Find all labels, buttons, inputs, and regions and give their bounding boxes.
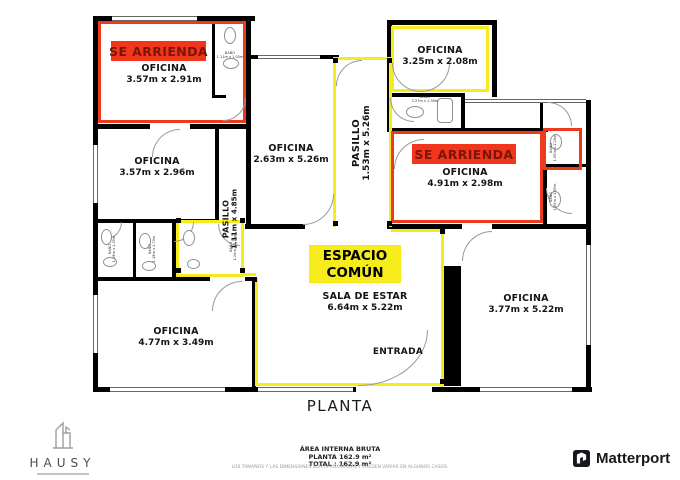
wall-segment [190,124,250,129]
bath-dims: 1.19m x 1.70m [152,229,156,269]
building-icon [46,420,80,450]
room-office-center: OFICINA 2.63m x 5.26m [248,143,334,165]
hausy-wordmark: HAUSY [10,456,115,470]
window-marker [258,55,320,59]
wall-segment [492,20,497,97]
bath-label: BAÑO 1.05m x 1.85m [549,177,559,217]
bath-dims: 1.11m x 1.05m [210,55,250,59]
bath-label: BAÑO 1.19m x 1.05m [108,229,118,269]
wall-marker [440,379,445,384]
matterport-icon [573,450,590,467]
hausy-tagline-bar [37,473,89,475]
entrance-door-arc [358,330,428,386]
room-name: OFICINA [98,156,216,167]
common-area-outline [441,229,444,387]
wall-column [444,266,461,386]
wall-segment [93,124,150,129]
banner-text-line2: COMÚN [309,265,401,282]
hausy-logo: HAUSY [10,420,115,475]
room-dims: 3.57m x 2.91m [104,75,224,85]
room-name: SALA DE ESTAR [298,291,432,302]
common-area-outline [391,229,444,232]
room-name: OFICINA [413,167,517,178]
room-dims: 3.25m x 2.08m [394,57,486,67]
sink-fixture [187,259,200,269]
door-arc [462,231,492,261]
bath-dims: 1.05m x 1.26m [553,128,557,168]
entrance-label: ENTRADA [362,347,434,357]
room-dims: 3.57m x 2.96m [98,168,216,178]
wall-segment [133,219,136,280]
banner-se-arrienda-1: SE ARRIENDA [111,41,206,61]
wall-segment [93,277,210,281]
toilet-fixture [224,27,236,44]
wall-marker [176,268,181,273]
toilet-fixture [183,230,195,246]
room-office-bottom-left: OFICINA 4.77m x 3.49m [112,326,240,348]
wall-marker [240,268,245,273]
room-living: SALA DE ESTAR 6.64m x 5.22m [298,291,432,313]
room-dims: 4.91m x 2.98m [413,179,517,189]
bath-label: BAÑO 1.11m x 1.05m [210,51,250,61]
wall-segment [387,20,497,25]
window-marker [93,295,98,353]
bath-dims: 1.05m x 1.85m [553,177,557,217]
banner-text-line1: ESPACIO [309,248,401,265]
entrance-opening [356,386,432,393]
door-arc [212,281,242,311]
room-office-top-left: OFICINA 3.57m x 2.91m [104,63,224,85]
wall-marker [387,221,392,226]
bath-dims: 1.19m x 1.05m [112,229,116,269]
window-marker [480,387,572,392]
bath-label: BAÑO 2.27m x 1.30m [405,95,445,105]
room-name: OFICINA [112,326,240,337]
room-name: OFICINA [466,293,586,304]
window-marker [586,245,591,345]
toilet-fixture [406,106,424,118]
wall-marker [252,277,257,282]
matterport-logo: Matterport [573,450,670,467]
plan-title: PLANTA [250,397,430,415]
bath-label: BAÑO 1.19m x 1.70m [148,229,158,269]
common-area-outline [255,383,444,386]
room-name: OFICINA [394,45,486,56]
common-area-outline [255,278,258,386]
window-marker [465,99,586,103]
common-area-outline [244,273,256,276]
room-dims: 2.63m x 5.26m [248,155,334,165]
room-dims: 4.77m x 3.49m [112,338,240,348]
bath-dims: 2.27m x 1.30m [405,99,445,103]
hall-dims: 1.53m x 5.26m [362,105,372,180]
room-dims: 6.64m x 5.22m [298,303,432,313]
common-area-outline [333,57,392,60]
wall-marker [333,58,338,63]
banner-text: SE ARRIENDA [109,44,208,59]
door-arc [303,194,334,225]
room-name: OFICINA [248,143,334,154]
bath-label: BAÑO 1.24m x 1.70m [229,227,239,267]
window-marker [258,387,353,392]
bath-label: BAÑO 1.05m x 1.26m [549,128,559,168]
room-dims: 3.77m x 5.22m [466,305,586,315]
room-office-top-right: OFICINA 3.25m x 2.08m [394,45,486,67]
room-office-bottom-right: OFICINA 3.77m x 5.22m [466,293,586,315]
matterport-wordmark: Matterport [596,450,670,467]
wall-segment [246,16,251,229]
banner-se-arrienda-2: SE ARRIENDA [412,144,516,164]
door-arc [152,129,180,157]
window-marker [110,387,225,392]
floor-plan: SE ARRIENDA SE ARRIENDA ESPACIO COMÚN OF… [0,0,680,480]
hall-name: PASILLO [351,119,362,167]
wall-marker [333,221,338,226]
bath-dims: 1.24m x 1.70m [233,227,237,267]
banner-espacio-comun: ESPACIO COMÚN [309,245,401,283]
wall-segment [245,224,305,229]
room-name: OFICINA [104,63,224,74]
room-office-right: OFICINA 4.91m x 2.98m [413,167,517,189]
wall-segment [540,100,543,130]
hall-main-label: PASILLO 1.53m x 5.26m [344,83,378,203]
disclaimer-text: LOS TAMAÑOS Y LAS DIMENSIONES SON APROXI… [190,465,490,470]
door-arc [548,102,572,126]
room-office-left: OFICINA 3.57m x 2.96m [98,156,216,178]
wall-marker [440,229,445,234]
banner-text: SE ARRIENDA [415,147,514,162]
wall-segment [492,224,586,229]
